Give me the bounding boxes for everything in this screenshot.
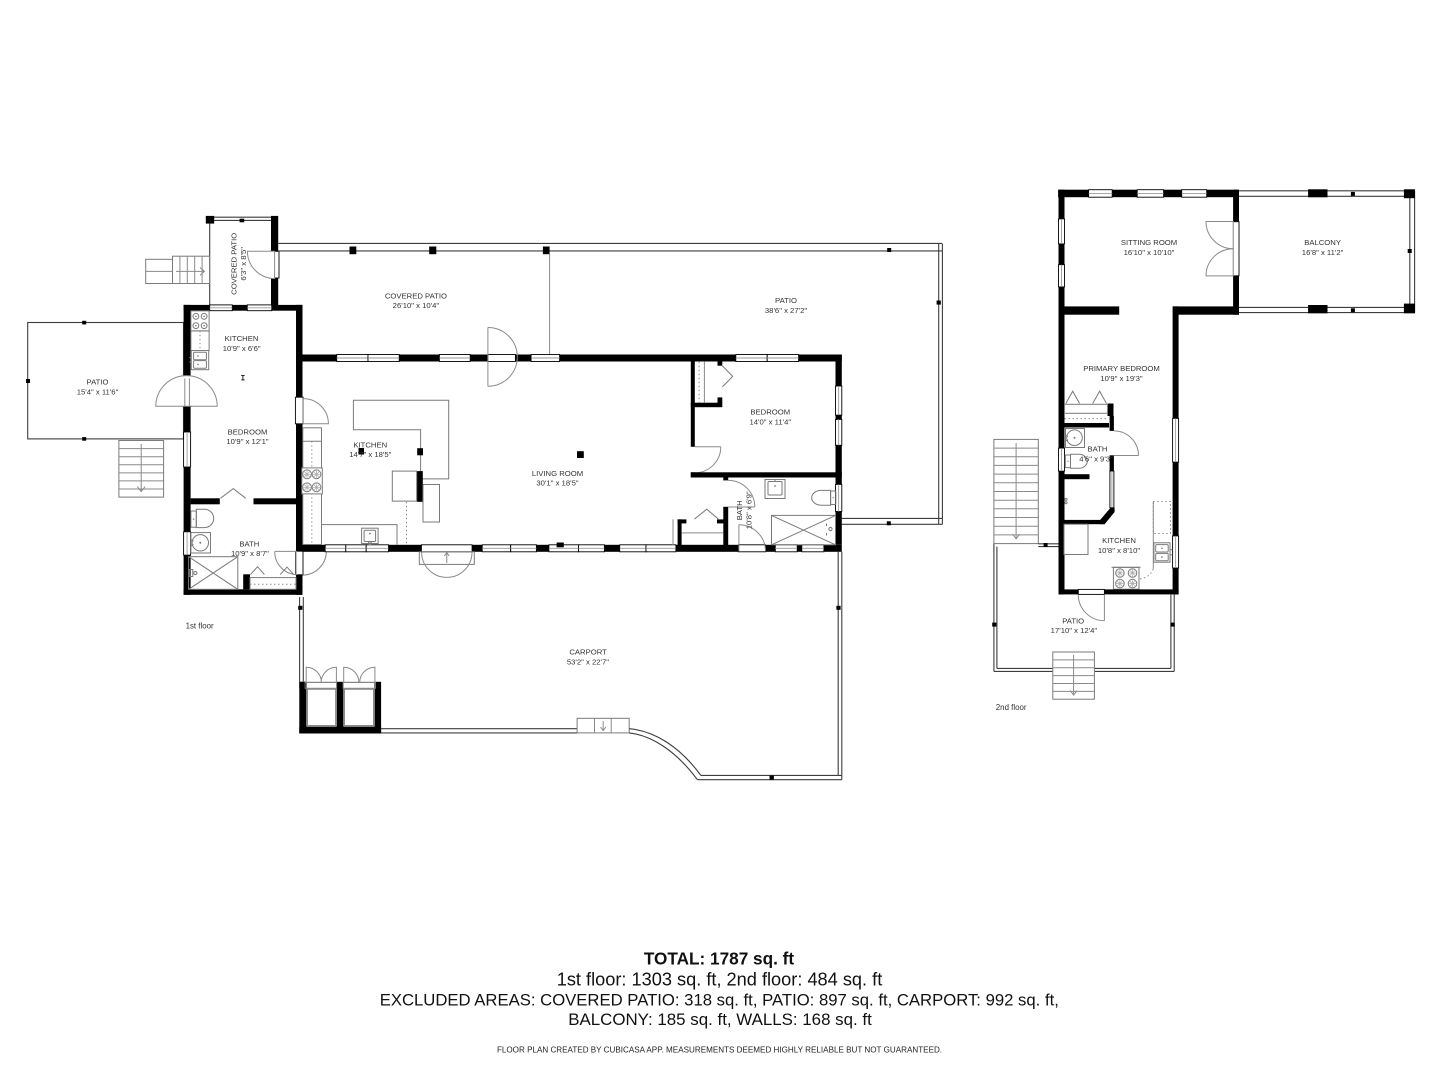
svg-text:10'9" x 19'3": 10'9" x 19'3" — [1100, 374, 1142, 383]
svg-text:EXCLUDED AREAS: COVERED PATIO:: EXCLUDED AREAS: COVERED PATIO: 318 sq. f… — [380, 990, 1059, 1009]
svg-text:BALCONY: 185 sq. ft, WALLS: 16: BALCONY: 185 sq. ft, WALLS: 168 sq. ft — [568, 1010, 872, 1029]
svg-text:COVERED PATIO: COVERED PATIO — [229, 233, 238, 295]
svg-text:16'10" x 10'10": 16'10" x 10'10" — [1124, 248, 1175, 257]
svg-text:CARPORT: CARPORT — [569, 648, 607, 657]
svg-text:LIVING ROOM: LIVING ROOM — [532, 469, 583, 478]
svg-text:1st floor: 1st floor — [186, 621, 214, 630]
svg-text:BEDROOM: BEDROOM — [228, 427, 268, 436]
svg-text:10'8" x 6'9": 10'8" x 6'9" — [744, 491, 753, 529]
svg-text:BATH: BATH — [735, 500, 744, 520]
svg-text:10'9" x 12'1": 10'9" x 12'1" — [226, 437, 268, 446]
svg-text:BATH: BATH — [239, 539, 259, 548]
svg-text:PATIO: PATIO — [775, 296, 797, 305]
svg-text:10'8" x 8'10": 10'8" x 8'10" — [1098, 546, 1140, 555]
svg-text:FLOOR PLAN CREATED BY CUBICASA: FLOOR PLAN CREATED BY CUBICASA APP. MEAS… — [497, 1045, 942, 1054]
svg-text:38'6" x 27'2": 38'6" x 27'2" — [765, 306, 807, 315]
svg-text:26'10" x 10'4": 26'10" x 10'4" — [393, 301, 440, 310]
svg-text:6'3" x 8'5": 6'3" x 8'5" — [239, 247, 248, 281]
svg-text:BALCONY: BALCONY — [1304, 238, 1341, 247]
svg-text:KITCHEN: KITCHEN — [353, 440, 387, 449]
svg-text:14'7" x 18'5": 14'7" x 18'5" — [349, 450, 391, 459]
svg-text:1st floor: 1303 sq. ft, 2nd fl: 1st floor: 1303 sq. ft, 2nd floor: 484 s… — [557, 970, 883, 990]
svg-text:KITCHEN: KITCHEN — [225, 334, 259, 343]
svg-text:14'0" x 11'4": 14'0" x 11'4" — [750, 417, 792, 426]
svg-text:4'6" x 9'3": 4'6" x 9'3" — [1079, 454, 1113, 463]
svg-text:KITCHEN: KITCHEN — [1102, 536, 1136, 545]
svg-text:TOTAL: 1787 sq. ft: TOTAL: 1787 sq. ft — [644, 949, 795, 969]
svg-text:15'4" x 11'6": 15'4" x 11'6" — [77, 387, 119, 396]
svg-text:2nd floor: 2nd floor — [996, 703, 1027, 712]
svg-text:PRIMARY BEDROOM: PRIMARY BEDROOM — [1083, 364, 1160, 373]
svg-text:10'9" x 6'6": 10'9" x 6'6" — [223, 344, 261, 353]
svg-text:PATIO: PATIO — [1062, 616, 1084, 625]
svg-text:BATH: BATH — [1088, 445, 1108, 454]
svg-text:16'8" x 11'2": 16'8" x 11'2" — [1302, 248, 1344, 257]
svg-text:53'2" x 22'7": 53'2" x 22'7" — [567, 658, 609, 667]
svg-text:SITTING ROOM: SITTING ROOM — [1121, 238, 1177, 247]
svg-text:10'9" x 8'7": 10'9" x 8'7" — [231, 549, 269, 558]
svg-text:17'10" x 12'4": 17'10" x 12'4" — [1051, 626, 1098, 635]
svg-text:COVERED PATIO: COVERED PATIO — [385, 291, 447, 300]
svg-text:PATIO: PATIO — [87, 378, 109, 387]
svg-text:BEDROOM: BEDROOM — [750, 408, 790, 417]
svg-text:30'1" x 18'5": 30'1" x 18'5" — [536, 479, 578, 488]
